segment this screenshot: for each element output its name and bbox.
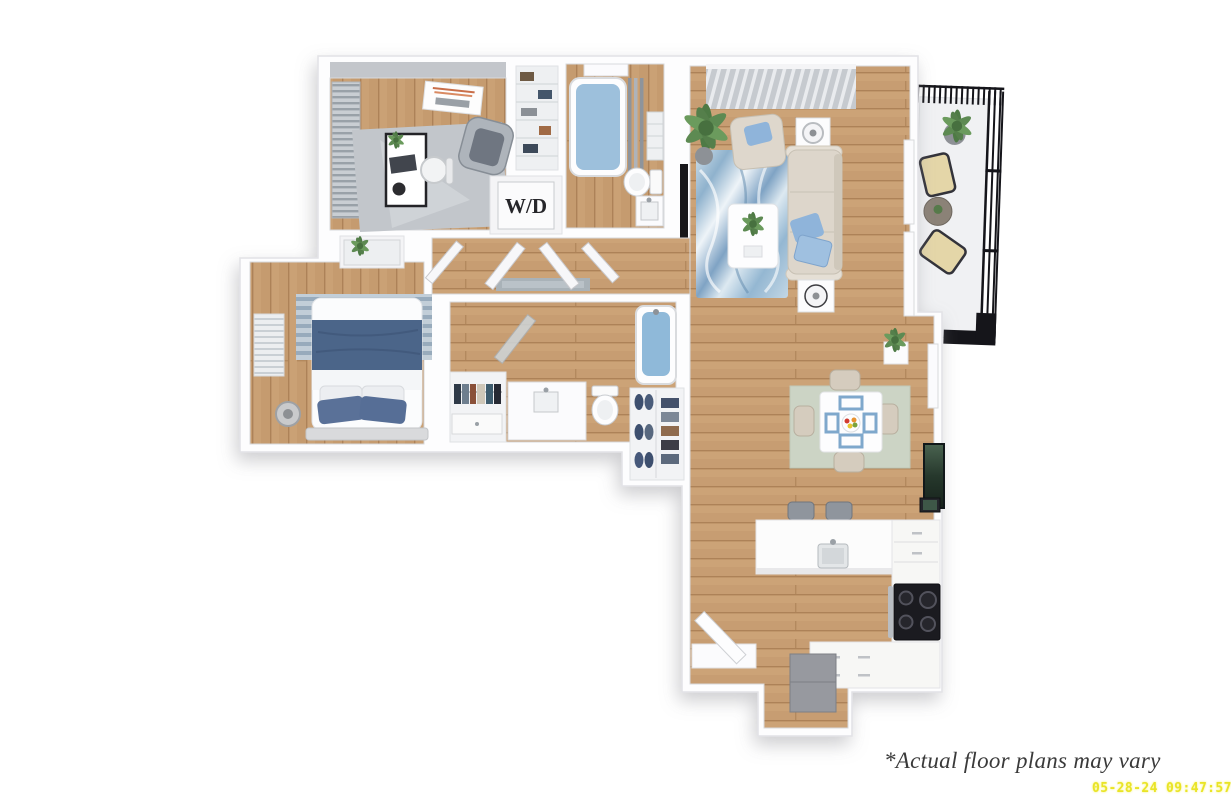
toilet-1	[624, 168, 662, 196]
refrigerator	[790, 654, 836, 712]
navy-blanket	[312, 320, 422, 370]
vanity-1	[636, 196, 663, 226]
disclaimer-text: *Actual floor plans may vary	[884, 748, 1224, 774]
bed	[306, 298, 428, 440]
shower-curtain	[628, 78, 632, 174]
bedroom-window-blinds	[254, 314, 284, 376]
stove	[888, 584, 940, 640]
office-wall-art	[423, 81, 484, 115]
office-chair	[421, 157, 447, 183]
toilet-2	[592, 386, 618, 425]
shoe-closet	[630, 388, 684, 480]
headboard	[306, 428, 428, 440]
bar-stool-1	[788, 502, 814, 520]
bar-stool-2	[826, 502, 852, 520]
walk-in-closet	[450, 372, 506, 442]
fruit-bowl	[842, 414, 860, 432]
dining-chair-bottom	[834, 452, 864, 472]
living-window-2	[904, 232, 914, 316]
oven-handle	[888, 586, 893, 638]
hallway	[426, 238, 692, 294]
bathtub-1-water	[576, 84, 620, 170]
palm-pot	[695, 147, 713, 165]
closet-items	[520, 72, 534, 81]
folded-clothes	[661, 398, 679, 464]
slatted-window-wall	[706, 69, 856, 109]
floor-plan-page: W/D	[0, 0, 1231, 807]
dining-window	[928, 344, 938, 408]
kitchen-faucet	[830, 539, 836, 545]
office-closet	[516, 66, 558, 170]
wd-label: W/D	[505, 194, 547, 218]
office-bedroom	[330, 62, 516, 232]
dining-chair-top	[830, 370, 860, 390]
hall-bathroom	[566, 64, 664, 228]
wall-tv	[680, 164, 688, 242]
sofa	[786, 146, 842, 280]
breakfast-bar	[756, 520, 894, 574]
closet-floor	[516, 66, 558, 170]
laundry-closet: W/D	[490, 176, 562, 234]
bathroom1-window	[584, 64, 628, 76]
floor-plan-rendering: W/D	[0, 0, 1231, 807]
dining-chair-left	[794, 406, 814, 436]
office-desk	[386, 131, 426, 206]
bathtub-2	[636, 306, 676, 384]
primary-bedroom	[250, 236, 432, 444]
coffee-table	[728, 204, 778, 268]
desk-lamp	[393, 183, 406, 196]
timestamp-watermark: 05-28-24 09:47:57	[1092, 781, 1231, 796]
office-top-wall-face	[330, 62, 506, 80]
balcony	[909, 85, 1004, 346]
living-accent-chair	[729, 113, 786, 170]
linen-shelves	[647, 112, 663, 160]
living-window-1	[904, 140, 914, 224]
vanity-2	[508, 382, 586, 440]
